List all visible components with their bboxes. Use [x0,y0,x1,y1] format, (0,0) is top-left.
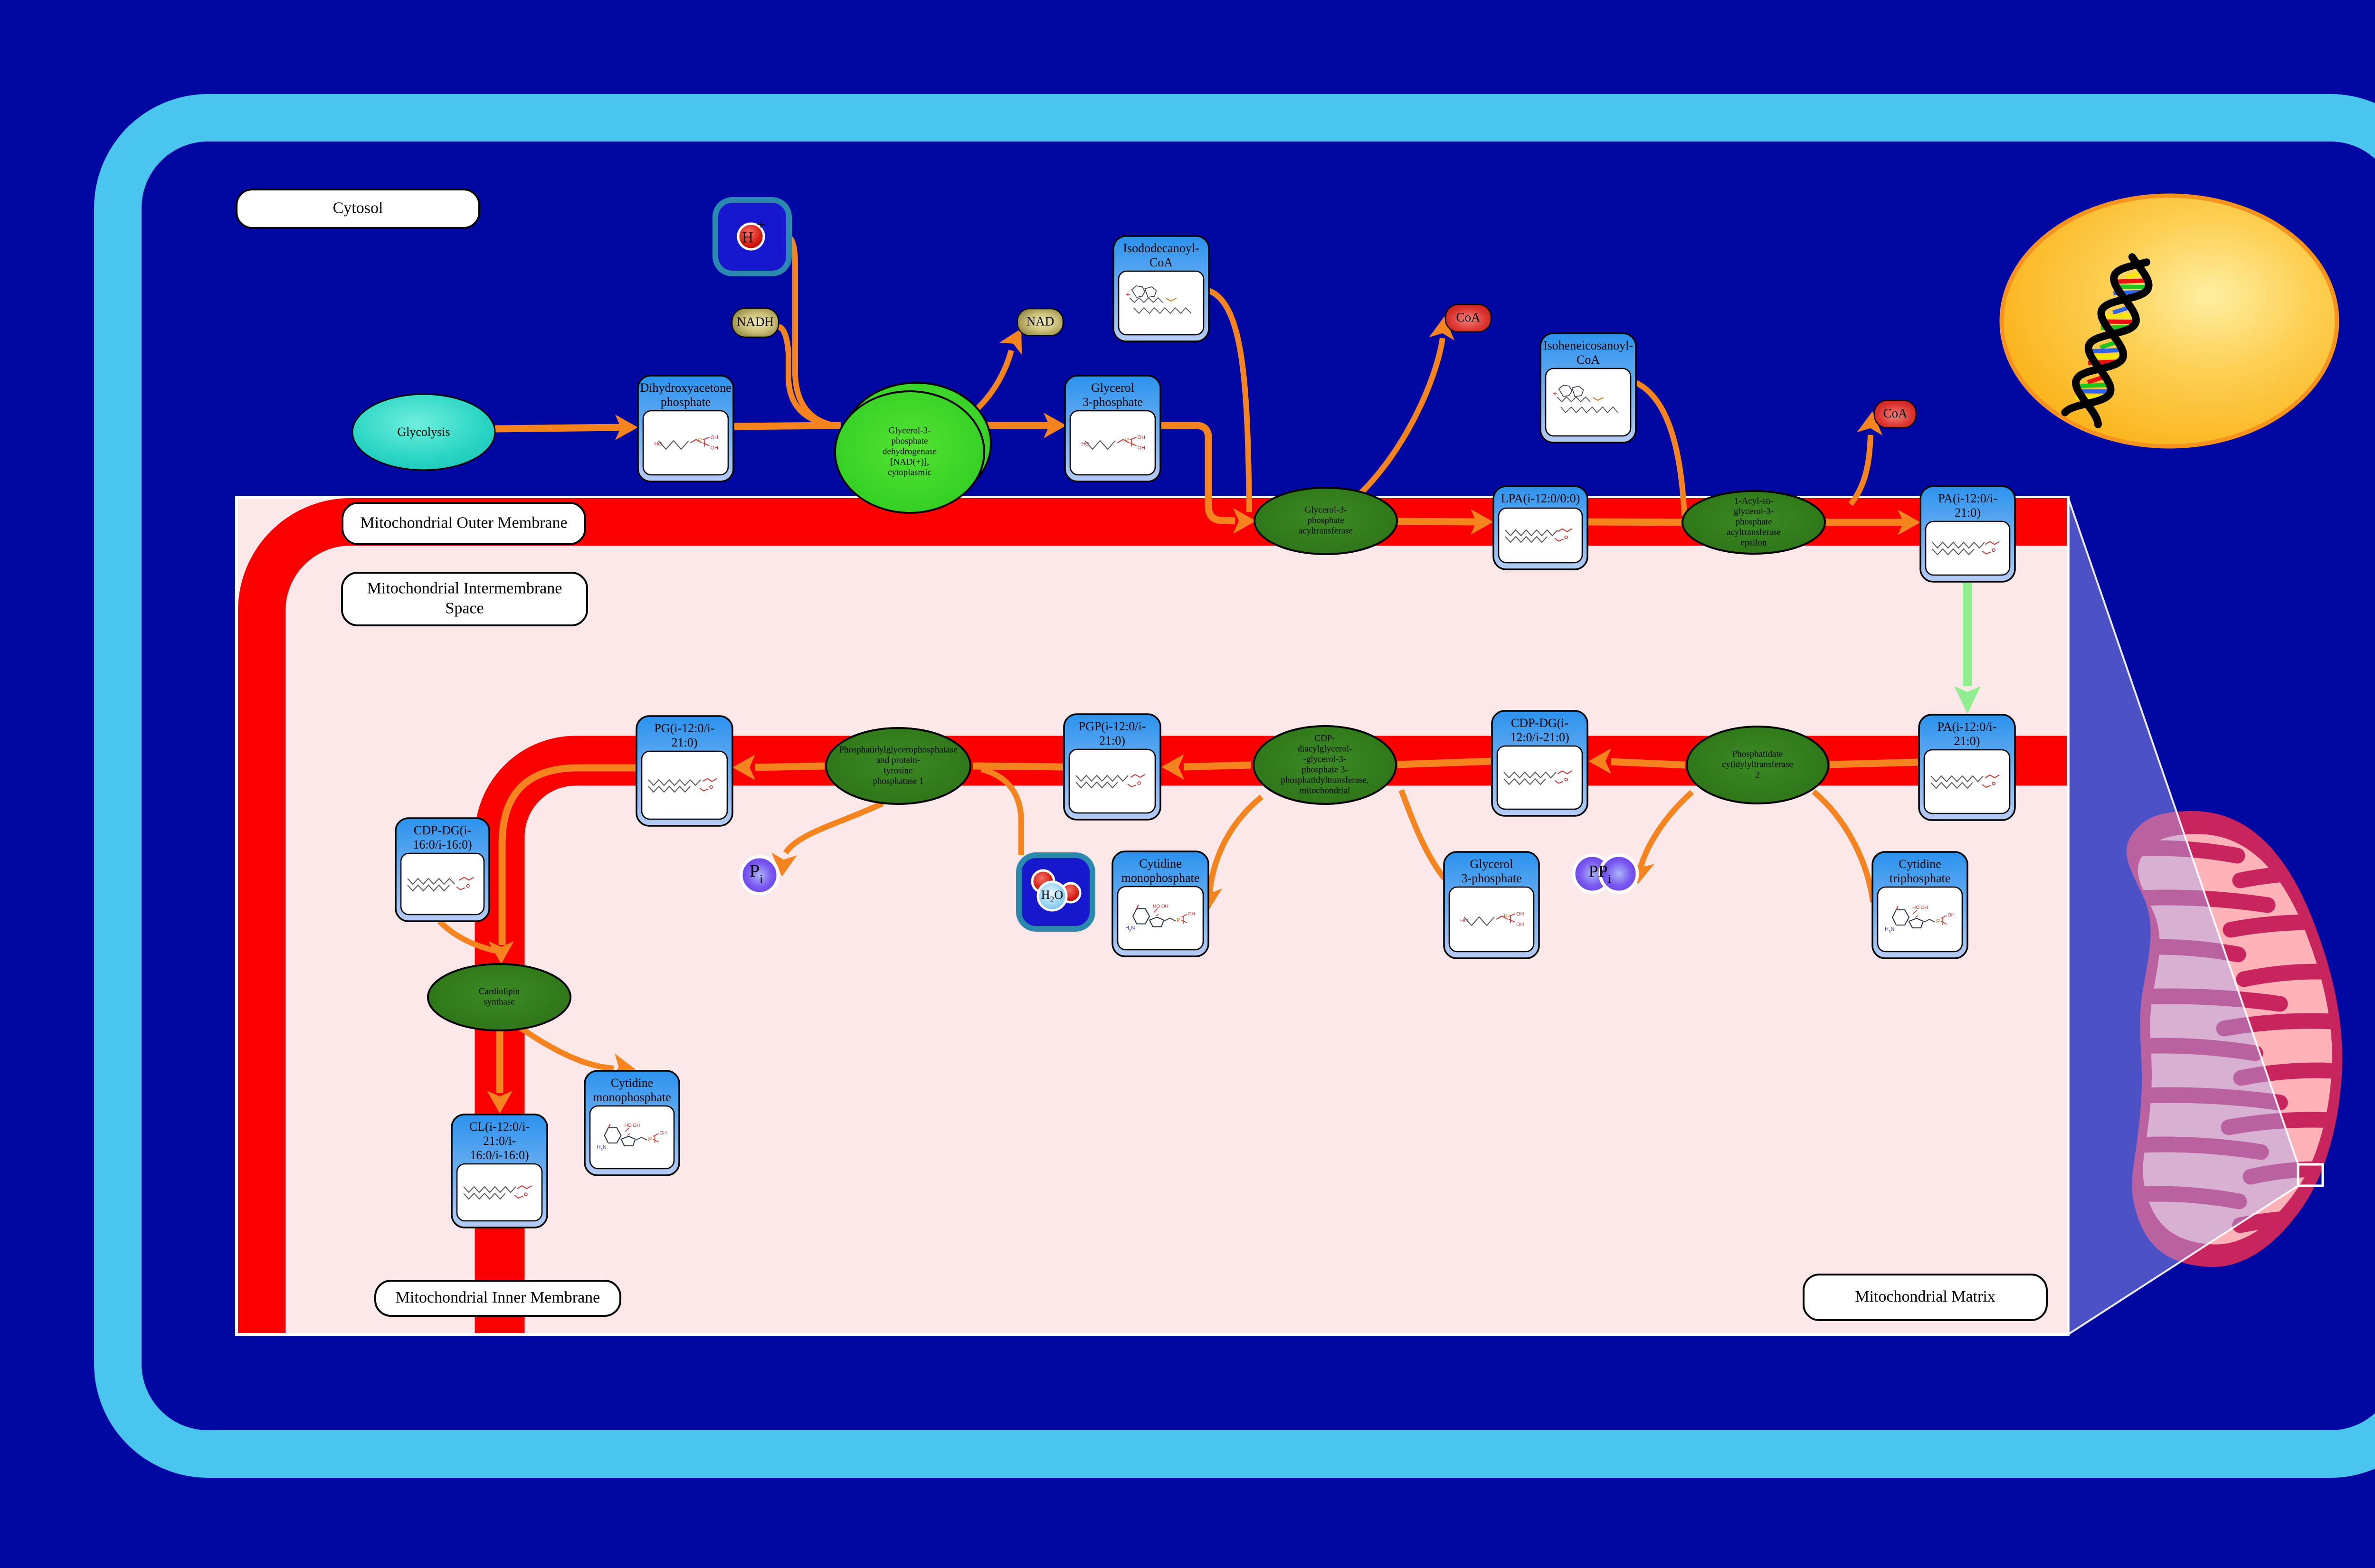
svg-text:phosphate 3-: phosphate 3- [1301,765,1348,775]
svg-text:glycerol-3-: glycerol-3- [1734,506,1774,516]
svg-text:HO: HO [655,442,663,447]
svg-text:P: P [1125,437,1129,444]
svg-text:cytidylyltransferase: cytidylyltransferase [1722,759,1793,769]
svg-text:OH: OH [1516,911,1524,917]
svg-text:Cytidine: Cytidine [1899,857,1941,871]
svg-text:triphosphate: triphosphate [1890,871,1951,885]
svg-text:Dihydroxyacetone: Dihydroxyacetone [640,381,731,395]
svg-text:21:0): 21:0) [672,736,698,749]
svg-text:21:0): 21:0) [1099,734,1125,747]
svg-text:+: + [757,216,765,233]
svg-text:Mitochondrial Intermembrane: Mitochondrial Intermembrane [367,579,562,597]
svg-text:Glycerol-3-: Glycerol-3- [889,425,931,435]
svg-text:CoA: CoA [1577,353,1600,367]
svg-text:Isoheneicosanoyl-: Isoheneicosanoyl- [1543,339,1633,352]
svg-text:H: H [742,229,753,246]
svg-text:HO OH: HO OH [1912,905,1928,910]
svg-text:P: P [1936,918,1940,925]
svg-text:CL(i-12:0/i-: CL(i-12:0/i- [469,1120,530,1133]
svg-text:diacylglycerol-: diacylglycerol- [1297,744,1352,754]
svg-text:Cytidine: Cytidine [611,1076,654,1090]
svg-text:3-phosphate: 3-phosphate [1083,395,1143,409]
svg-text:2: 2 [1755,770,1760,780]
svg-text:CoA: CoA [1883,406,1908,420]
svg-text:OH: OH [1516,922,1524,927]
svg-text:CoA: CoA [1149,255,1173,269]
svg-text:mitochondrial: mitochondrial [1300,785,1350,795]
svg-text:21:0/i-: 21:0/i- [483,1134,516,1148]
svg-text:phosphate: phosphate [891,436,928,446]
svg-text:Glycerol: Glycerol [1470,857,1513,871]
svg-text:PA(i-12:0/i-: PA(i-12:0/i- [1938,720,1997,734]
svg-text:phosphatidyltransferase,: phosphatidyltransferase, [1281,775,1368,785]
svg-text:Mitochondrial Inner Membrane: Mitochondrial Inner Membrane [396,1289,600,1306]
svg-text:3-phosphate: 3-phosphate [1461,871,1521,885]
svg-text:CDP-: CDP- [1314,733,1335,743]
svg-text:12:0/i-21:0): 12:0/i-21:0) [1510,730,1569,744]
svg-text:NADH: NADH [737,315,774,329]
svg-text:-glycerol-3-: -glycerol-3- [1303,754,1347,764]
svg-text:monophosphate: monophosphate [593,1090,671,1104]
svg-text:Cytosol: Cytosol [333,199,383,217]
svg-text:acyltransferase: acyltransferase [1727,527,1781,537]
svg-text:Glycolysis: Glycolysis [397,425,450,439]
svg-text:phosphate: phosphate [1735,517,1772,527]
svg-text:21:0): 21:0) [1954,734,1980,748]
svg-text:phosphate: phosphate [1307,515,1344,525]
svg-text:OH: OH [711,435,719,441]
svg-text:and protein-: and protein- [876,755,920,765]
svg-text:P: P [698,437,702,444]
svg-text:phosphate: phosphate [661,395,711,409]
svg-text:CDP-DG(i-: CDP-DG(i- [414,823,471,837]
svg-text:dehydrogenase: dehydrogenase [883,446,937,456]
svg-text:NAD: NAD [1026,314,1054,329]
svg-text:phosphatase 1: phosphatase 1 [873,776,923,786]
svg-text:OH: OH [1947,913,1955,918]
svg-text:Phosphatidylglycerophosphatase: Phosphatidylglycerophosphatase [839,745,957,755]
svg-text:21:0): 21:0) [1955,506,1981,520]
svg-text:P: P [648,1136,652,1143]
svg-text:Mitochondrial Outer Membrane: Mitochondrial Outer Membrane [360,514,567,531]
svg-text:LPA(i-12:0/0:0): LPA(i-12:0/0:0) [1501,491,1580,505]
svg-text:HO: HO [1460,918,1468,924]
svg-text:OH: OH [660,1131,667,1136]
svg-text:PGP(i-12:0/i-: PGP(i-12:0/i- [1079,719,1146,733]
svg-text:P: P [1177,917,1180,924]
svg-text:OH: OH [1188,912,1195,917]
svg-text:HO OH: HO OH [625,1123,640,1128]
svg-text:Cytidine: Cytidine [1139,857,1182,870]
svg-text:HO: HO [1082,442,1090,447]
svg-text:tyrosine: tyrosine [883,765,912,775]
svg-text:epsilon: epsilon [1741,538,1767,548]
svg-text:1-Acyl-sn-: 1-Acyl-sn- [1734,496,1773,506]
svg-text:16:0/i-16:0): 16:0/i-16:0) [413,838,472,851]
svg-text:Phosphatidate: Phosphatidate [1732,749,1783,759]
svg-text:Space: Space [445,599,484,617]
svg-text:CDP-DG(i-: CDP-DG(i- [1511,716,1568,730]
svg-text:OH: OH [1138,435,1146,441]
svg-text:Mitochondrial Matrix: Mitochondrial Matrix [1855,1288,1995,1305]
svg-text:OH: OH [711,445,719,451]
svg-text:OH: OH [1138,445,1146,451]
svg-text:16:0/i-16:0): 16:0/i-16:0) [470,1148,529,1162]
svg-text:HO OH: HO OH [1153,904,1168,909]
svg-text:monophosphate: monophosphate [1121,871,1200,885]
svg-text:Isododecanoyl-: Isododecanoyl- [1123,241,1199,255]
svg-text:P: P [1504,913,1508,920]
svg-text:[NAD(+)],: [NAD(+)], [890,457,929,467]
svg-text:PG(i-12:0/i-: PG(i-12:0/i- [654,721,714,735]
svg-text:Glycerol-3-: Glycerol-3- [1305,505,1347,515]
svg-text:PA(i-12:0/i-: PA(i-12:0/i- [1938,491,1997,505]
svg-text:acyltransferase: acyltransferase [1299,526,1353,536]
svg-text:Glycerol: Glycerol [1091,381,1134,395]
svg-text:cytoplasmic: cytoplasmic [888,467,931,477]
svg-text:synthase: synthase [484,997,514,1007]
svg-text:CoA: CoA [1456,310,1481,324]
svg-text:Cardiolipin: Cardiolipin [479,986,520,996]
